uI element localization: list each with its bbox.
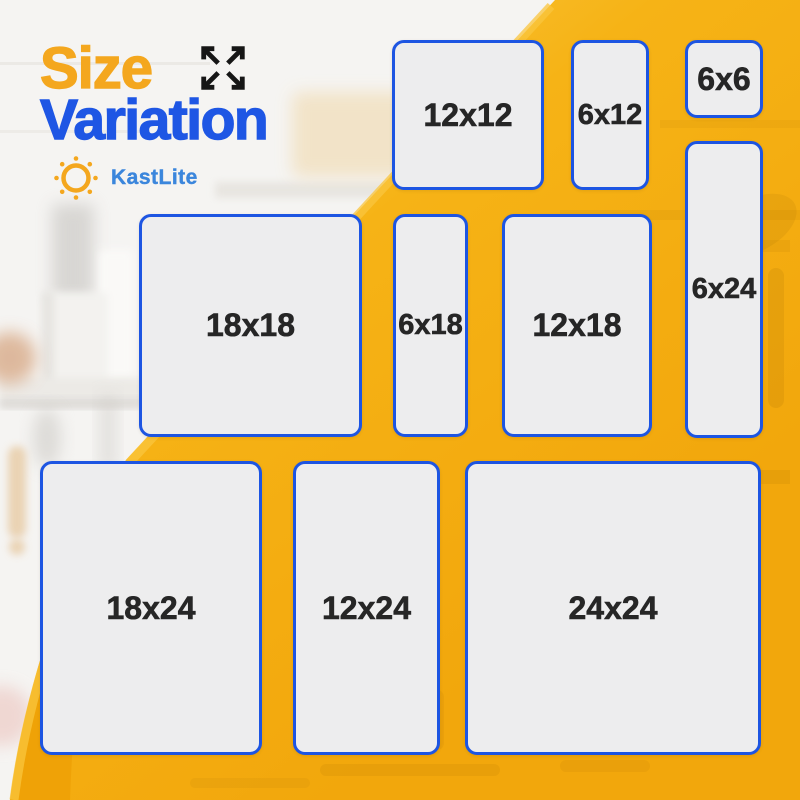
brand-name: KastLite	[111, 166, 198, 190]
size-panel-12x18: 12x18	[502, 214, 652, 437]
variation-title: Variation	[40, 92, 267, 149]
size-panel-24x24: 24x24	[465, 461, 761, 755]
size-panel-6x24: 6x24	[685, 141, 763, 438]
size-label-12x24: 12x24	[322, 590, 411, 627]
size-label-6x12: 6x12	[578, 99, 643, 132]
size-label-24x24: 24x24	[569, 590, 658, 627]
size-label-6x6: 6x6	[697, 61, 750, 98]
expand-arrows-icon	[196, 41, 250, 95]
size-label-12x18: 12x18	[533, 307, 622, 344]
sun-icon	[54, 156, 98, 200]
size-label-18x18: 18x18	[206, 307, 295, 344]
size-label-6x24: 6x24	[692, 273, 757, 306]
size-panel-6x18: 6x18	[393, 214, 468, 437]
brand-logo: KastLite	[54, 156, 198, 200]
product-size-variation-graphic: Size Variation KastLite 12x12 6x12 6x6	[0, 0, 800, 800]
size-panel-12x24: 12x24	[293, 461, 440, 755]
size-panel-12x12: 12x12	[392, 40, 544, 190]
size-label-18x24: 18x24	[107, 590, 196, 627]
size-panel-18x18: 18x18	[139, 214, 362, 437]
size-panel-6x12: 6x12	[571, 40, 649, 190]
size-panel-6x6: 6x6	[685, 40, 763, 118]
size-label-12x12: 12x12	[424, 97, 513, 134]
size-panel-18x24: 18x24	[40, 461, 262, 755]
size-label-6x18: 6x18	[398, 309, 463, 342]
